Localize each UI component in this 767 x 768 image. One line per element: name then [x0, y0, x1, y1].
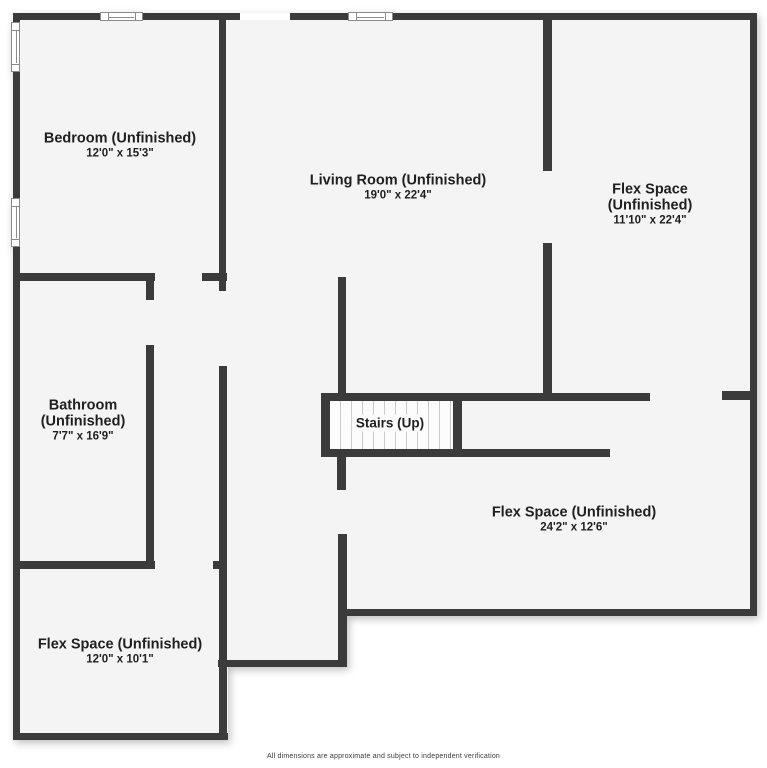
- exterior-top-wall-d: [393, 13, 757, 20]
- exterior-bottom-wall-main: [341, 609, 757, 616]
- stairs-divider-wall: [453, 393, 462, 457]
- window-left-lower-pane-line: [16, 207, 17, 238]
- stairs-label: Stairs (Up): [352, 415, 428, 432]
- room-name-bedroom: Bedroom (Unfinished): [44, 131, 196, 147]
- window-top-left-pane-line: [109, 17, 134, 18]
- bathroom-east-wall: [146, 345, 154, 568]
- window-top-right-pane-line: [357, 17, 384, 18]
- room-name-living-room: Living Room (Unfinished): [310, 173, 486, 189]
- bathroom-door-jamb: [146, 273, 154, 300]
- flex-divider-wall-north: [543, 13, 552, 171]
- hall-west-wall: [219, 366, 227, 740]
- exterior-left-wall-b: [13, 72, 20, 198]
- room-name-flex-space-lower: Flex Space (Unfinished): [492, 505, 656, 521]
- flex-divider-wall-south: [543, 243, 552, 400]
- room-label-flex-space-small: Flex Space (Unfinished)12'0" x 10'1": [38, 637, 202, 668]
- room-name-bathroom: Bathroom (Unfinished): [41, 398, 126, 430]
- room-label-living-room: Living Room (Unfinished)19'0" x 22'4": [310, 173, 486, 204]
- window-top-right: [348, 12, 393, 21]
- room-label-flex-space-lower: Flex Space (Unfinished)24'2" x 12'6": [492, 505, 656, 536]
- room-dims-living-room: 19'0" x 22'4": [310, 189, 486, 204]
- disclaimer-text: All dimensions are approximate and subje…: [0, 753, 767, 760]
- window-top-left: [100, 12, 143, 21]
- window-left-upper-divider: [12, 64, 19, 65]
- hall-north-stub-wall: [202, 273, 227, 281]
- small-flex-north-wall: [13, 561, 155, 569]
- window-top-left-divider: [135, 13, 136, 20]
- room-label-bathroom: Bathroom (Unfinished)7'7" x 16'9": [41, 398, 126, 445]
- living-room-west-wall: [338, 277, 346, 393]
- stairs-south-wall: [321, 449, 610, 457]
- room-dims-bathroom: 7'7" x 16'9": [41, 430, 126, 445]
- stairs-north-wall: [321, 393, 650, 401]
- exterior-left-wall-c: [13, 247, 20, 740]
- room-dims-flex-space-right: 11'10" x 22'4": [592, 214, 709, 229]
- room-name-flex-space-right: Flex Space (Unfinished): [592, 182, 709, 214]
- bathroom-north-wall: [13, 273, 155, 281]
- window-left-upper-pane-line: [16, 31, 17, 63]
- window-left-upper: [11, 22, 20, 72]
- floor-lower-left: [13, 616, 228, 740]
- room-dims-flex-space-lower: 24'2" x 12'6": [492, 521, 656, 536]
- window-top-right-divider: [385, 13, 386, 20]
- floor-plan: Stairs (Up)Bedroom (Unfinished)12'0" x 1…: [0, 0, 767, 768]
- bedroom-east-wall: [219, 13, 226, 291]
- understairs-wall-b: [338, 534, 347, 666]
- understairs-wall-a: [337, 457, 346, 490]
- exterior-top-wall-a: [13, 13, 100, 20]
- top-wall-opening: [240, 13, 290, 20]
- window-left-lower: [11, 198, 20, 247]
- room-label-bedroom: Bedroom (Unfinished)12'0" x 15'3": [44, 131, 196, 162]
- east-hall-stub-wall: [722, 391, 757, 400]
- exterior-right-wall: [750, 13, 757, 616]
- room-dims-flex-space-small: 12'0" x 10'1": [38, 653, 202, 668]
- exterior-bottom-wall-mid: [218, 660, 347, 667]
- room-name-flex-space-small: Flex Space (Unfinished): [38, 637, 202, 653]
- exterior-top-wall-c: [290, 13, 348, 20]
- window-left-lower-divider: [12, 239, 19, 240]
- room-label-flex-space-right: Flex Space (Unfinished)11'10" x 22'4": [592, 182, 709, 229]
- small-flex-north-nub: [213, 561, 227, 569]
- exterior-bottom-wall-left: [13, 733, 228, 740]
- room-dims-bedroom: 12'0" x 15'3": [44, 147, 196, 162]
- stairs-west-wall: [321, 393, 330, 457]
- exterior-left-wall-a: [13, 13, 20, 22]
